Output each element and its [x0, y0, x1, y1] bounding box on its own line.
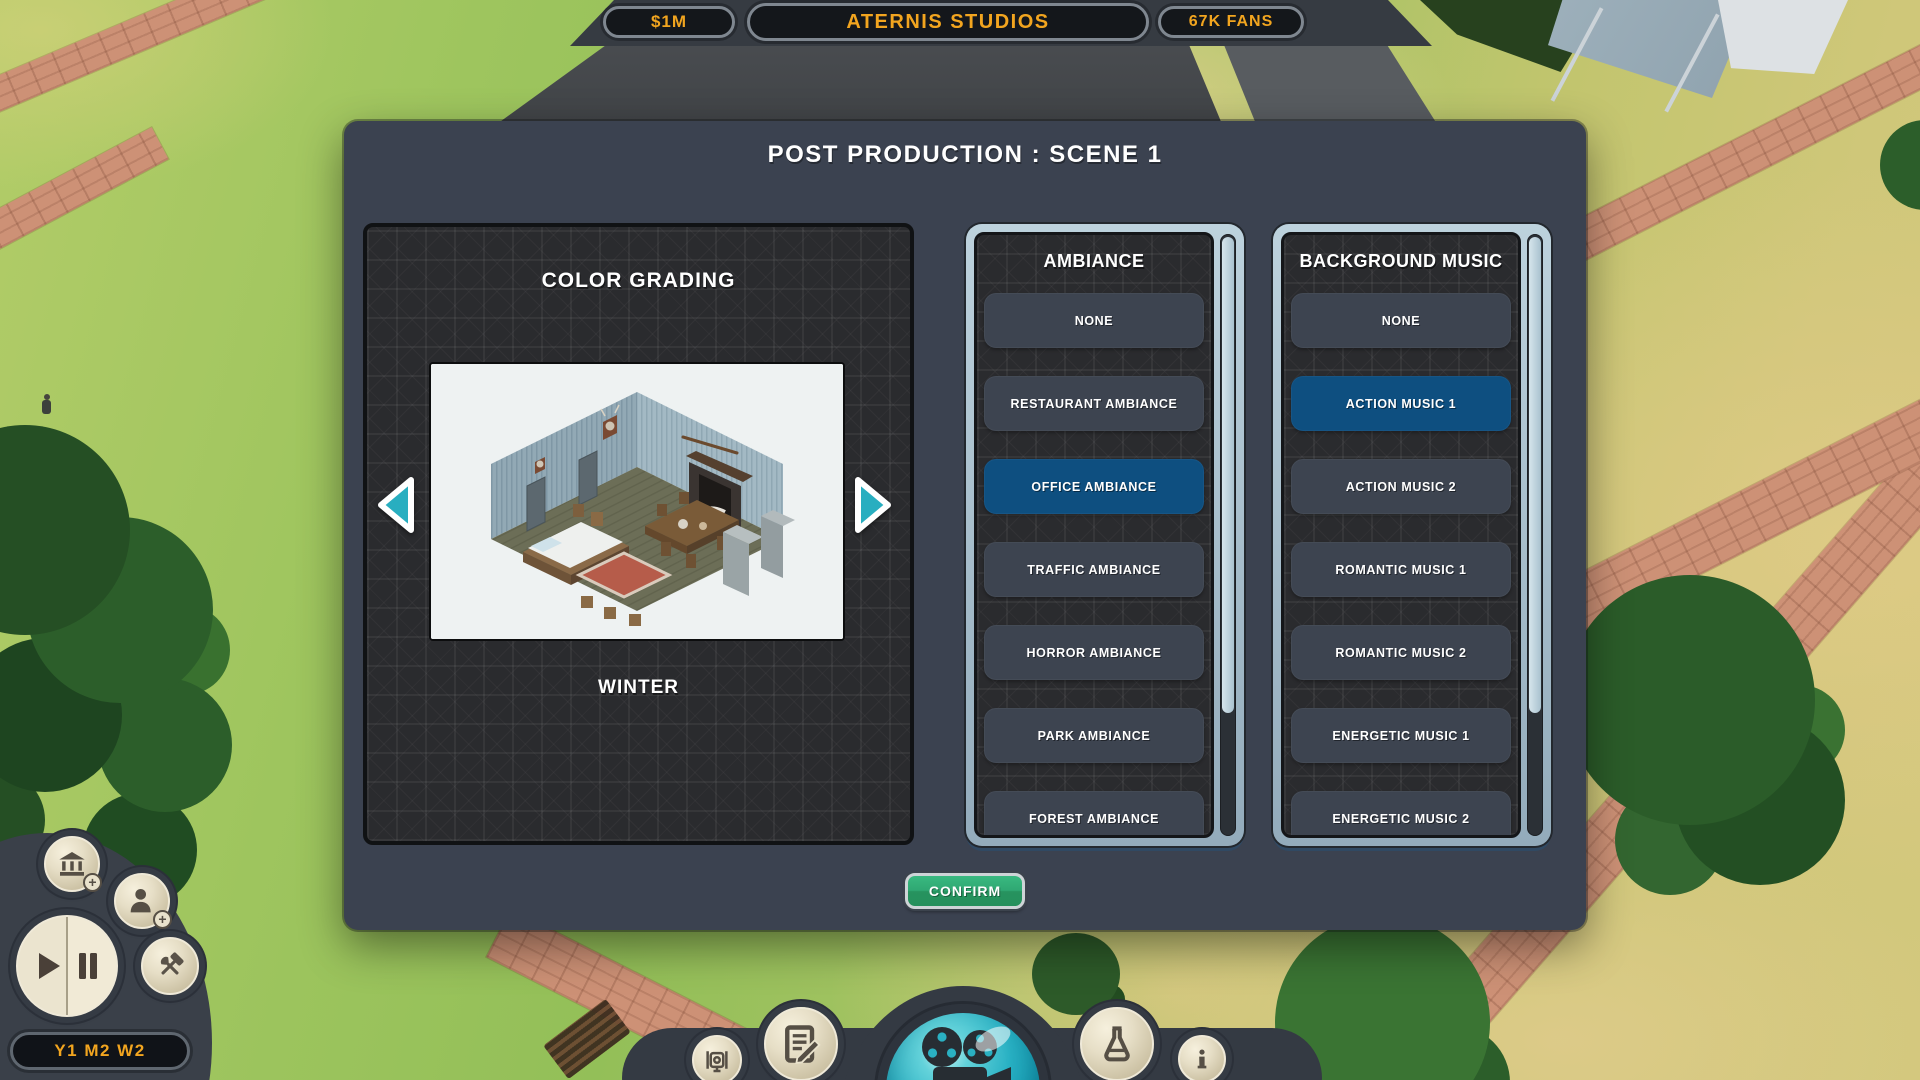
research-lab-button[interactable]	[1080, 1007, 1154, 1080]
play-pause-button[interactable]	[16, 915, 118, 1017]
hire-staff-button[interactable]: +	[114, 873, 170, 929]
ambiance-option[interactable]: HORROR AMBIANCE	[984, 625, 1204, 680]
studio-name: ATERNIS STUDIOS	[846, 11, 1049, 34]
ambiance-option[interactable]: TRAFFIC AMBIANCE	[984, 542, 1204, 597]
scrollbar-thumb[interactable]	[1529, 237, 1541, 713]
scrollbar-thumb[interactable]	[1222, 237, 1234, 713]
ambiance-option[interactable]: FOREST AMBIANCE	[984, 791, 1204, 835]
color-grading-selected-preset: WINTER	[367, 677, 910, 699]
money-value: $1M	[651, 12, 687, 32]
ambiance-option[interactable]: NONE	[984, 293, 1204, 348]
confirm-button[interactable]: CONFIRM	[905, 873, 1025, 909]
bank-add-icon	[56, 848, 88, 880]
plus-badge-icon: +	[153, 910, 172, 929]
isometric-room-preview	[431, 364, 843, 639]
tools-icon	[153, 949, 187, 983]
ambiance-option[interactable]: PARK AMBIANCE	[984, 708, 1204, 763]
film-camera-icon	[911, 1025, 1015, 1080]
studio-name-banner: ATERNIS STUDIOS	[747, 3, 1149, 41]
ambiance-option[interactable]: OFFICE AMBIANCE	[984, 459, 1204, 514]
stage-light-icon	[702, 1045, 732, 1075]
bank-add-button[interactable]: +	[44, 836, 100, 892]
ambiance-scrollbar[interactable]	[1220, 234, 1236, 836]
music-option-list: NONE ACTION MUSIC 1 ACTION MUSIC 2 ROMAN…	[1284, 285, 1518, 835]
pause-icon	[78, 952, 98, 980]
plus-badge-icon: +	[83, 873, 102, 892]
info-icon	[1189, 1046, 1215, 1072]
music-option[interactable]: ACTION MUSIC 1	[1291, 376, 1511, 431]
music-option[interactable]: ROMANTIC MUSIC 2	[1291, 625, 1511, 680]
music-option[interactable]: ENERGETIC MUSIC 2	[1291, 791, 1511, 835]
ambiance-option-list: NONE RESTAURANT AMBIANCE OFFICE AMBIANCE…	[977, 285, 1211, 835]
background-music-panel: BACKGROUND MUSIC NONE ACTION MUSIC 1 ACT…	[1273, 224, 1551, 846]
music-option[interactable]: ENERGETIC MUSIC 1	[1291, 708, 1511, 763]
ambiance-option[interactable]: RESTAURANT AMBIANCE	[984, 376, 1204, 431]
stage-light-button[interactable]	[692, 1035, 742, 1080]
music-scrollbar[interactable]	[1527, 234, 1543, 836]
game-date: Y1 M2 W2	[54, 1041, 145, 1061]
color-grading-title: COLOR GRADING	[367, 269, 910, 293]
script-edit-icon	[779, 1022, 823, 1066]
tools-button[interactable]	[141, 937, 199, 995]
music-option[interactable]: ACTION MUSIC 2	[1291, 459, 1511, 514]
left-arrow-icon	[373, 474, 419, 536]
music-option[interactable]: NONE	[1291, 293, 1511, 348]
ambiance-panel: AMBIANCE NONE RESTAURANT AMBIANCE OFFICE…	[966, 224, 1244, 846]
color-grading-panel: COLOR GRADING	[363, 223, 914, 845]
color-grading-preview	[431, 364, 843, 639]
post-production-dialog: POST PRODUCTION : SCENE 1 COLOR GRADING	[344, 121, 1586, 930]
game-date-indicator: Y1 M2 W2	[10, 1032, 190, 1070]
play-icon	[36, 951, 62, 981]
previous-preset-button[interactable]	[373, 474, 419, 536]
info-button[interactable]	[1178, 1035, 1226, 1080]
fans-value: 67K FANS	[1189, 13, 1273, 31]
script-edit-button[interactable]	[764, 1007, 838, 1080]
background-music-title: BACKGROUND MUSIC	[1284, 251, 1518, 272]
staff-add-icon	[126, 885, 158, 917]
lab-flask-icon	[1095, 1022, 1139, 1066]
fans-indicator: 67K FANS	[1158, 6, 1304, 38]
right-arrow-icon	[850, 474, 896, 536]
money-indicator: $1M	[603, 6, 735, 38]
dialog-title: POST PRODUCTION : SCENE 1	[344, 141, 1586, 169]
music-option[interactable]: ROMANTIC MUSIC 1	[1291, 542, 1511, 597]
next-preset-button[interactable]	[850, 474, 896, 536]
ambiance-title: AMBIANCE	[977, 251, 1211, 272]
